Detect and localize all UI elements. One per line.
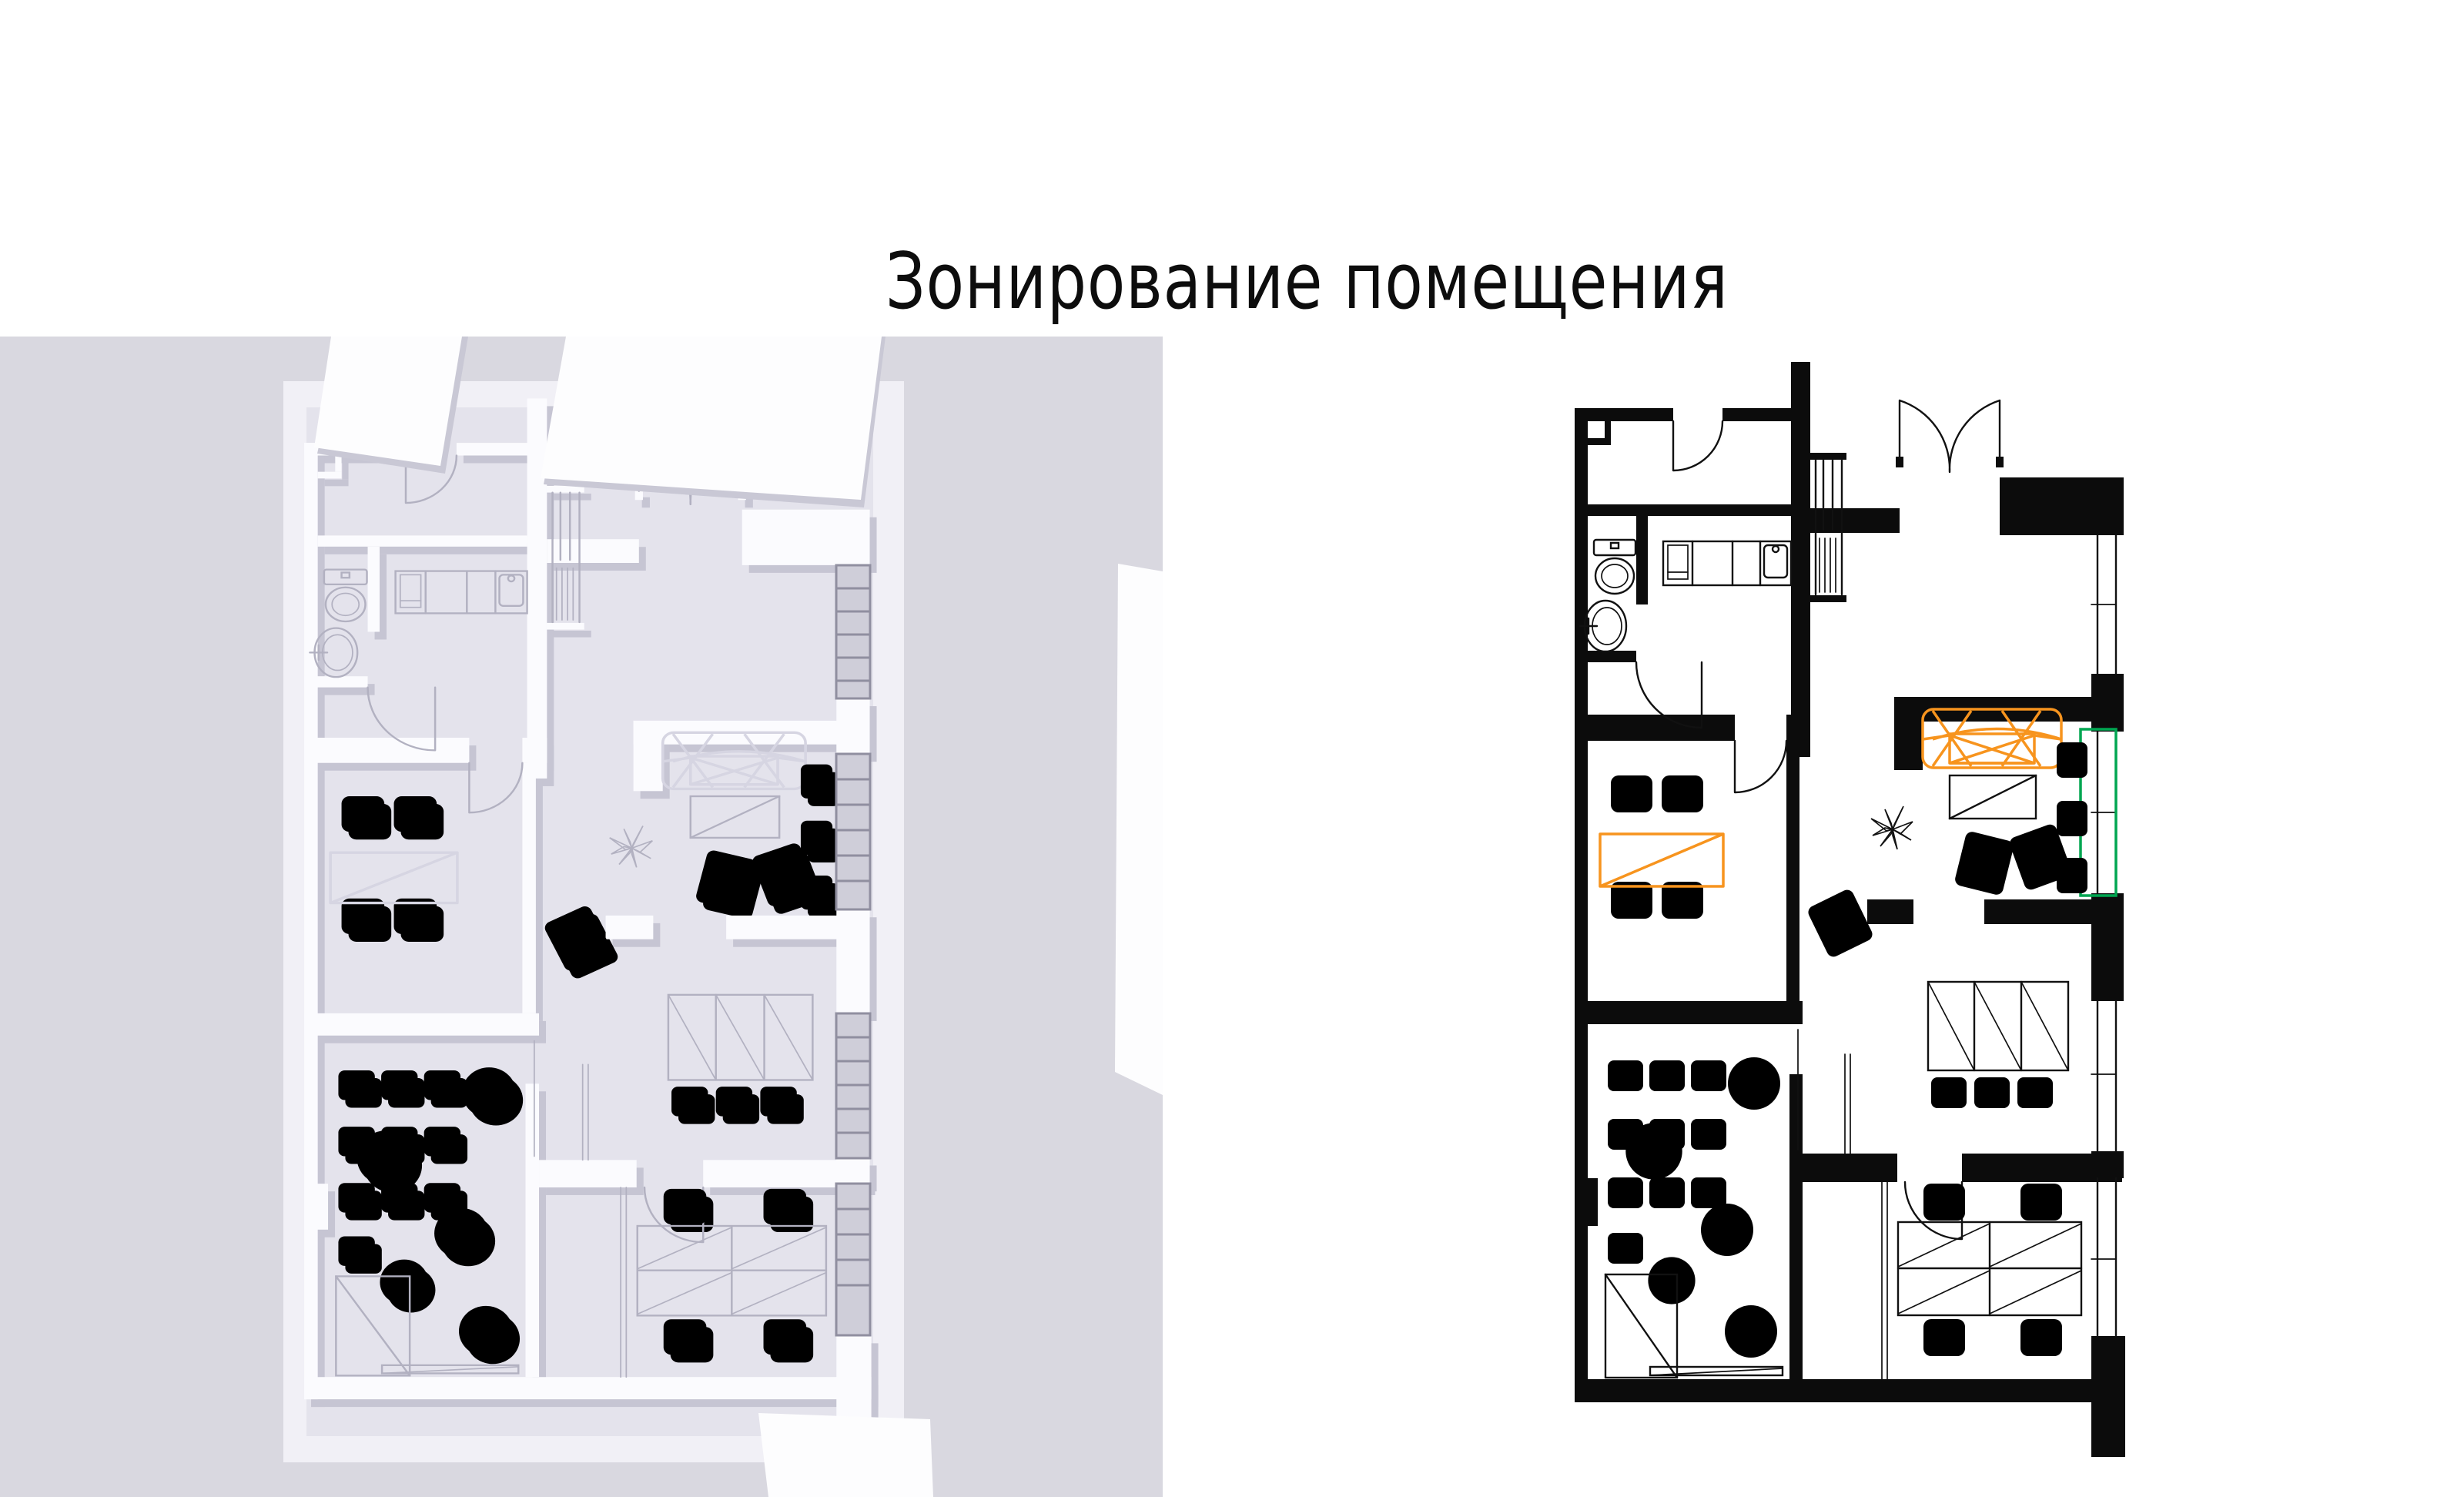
zoning-plan-panel bbox=[1571, 350, 2144, 1467]
render-3d-panel bbox=[0, 337, 1163, 1497]
slide: Зонирование помещения bbox=[0, 0, 2464, 1497]
page-title: Зонирование помещения bbox=[885, 236, 1729, 327]
